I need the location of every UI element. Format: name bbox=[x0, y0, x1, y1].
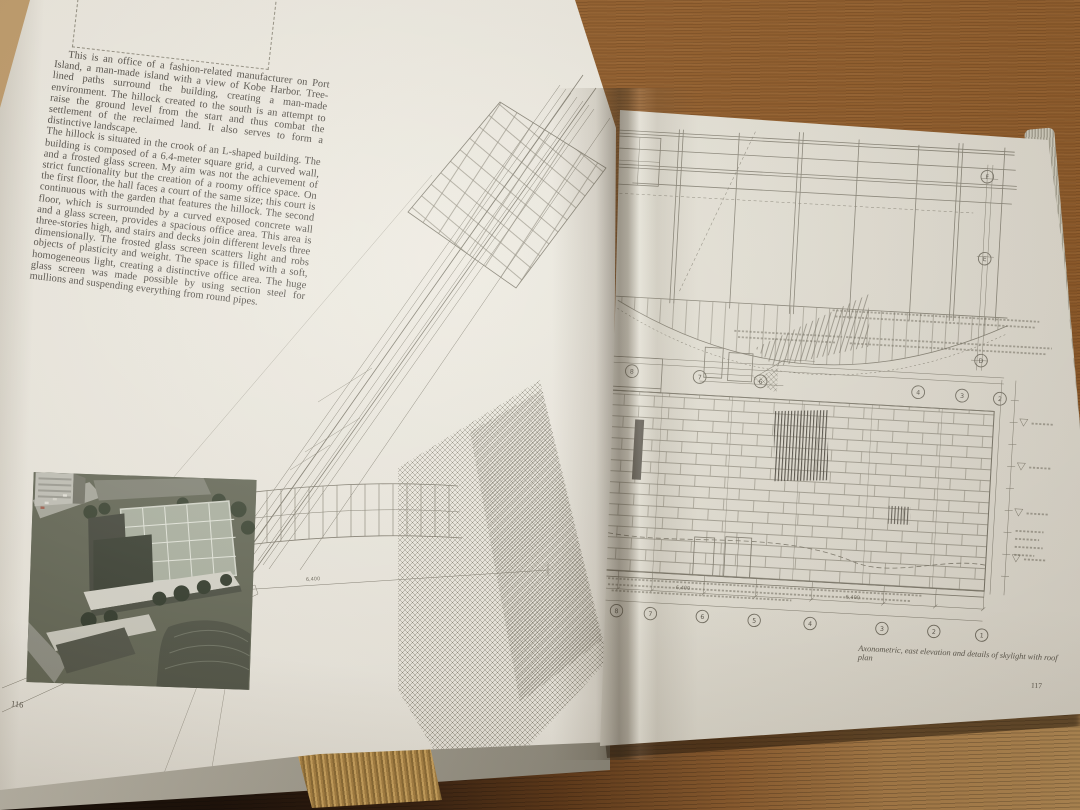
page-number-right: 117 bbox=[1031, 681, 1042, 691]
plan-col-bubble: 4 bbox=[911, 385, 924, 398]
svg-text:4: 4 bbox=[808, 621, 812, 628]
plan-col-bubble: 3 bbox=[955, 389, 968, 402]
page-number-left: 116 bbox=[11, 698, 24, 709]
photo-open-book: This is an office of a fashion-related m… bbox=[0, 0, 1080, 810]
svg-text:4: 4 bbox=[916, 389, 920, 396]
svg-text:7: 7 bbox=[648, 611, 652, 618]
svg-text:D: D bbox=[978, 358, 983, 365]
svg-text:5: 5 bbox=[752, 618, 756, 625]
svg-text:3: 3 bbox=[880, 626, 884, 633]
svg-text:3: 3 bbox=[960, 393, 964, 400]
plan-col-bubble: 8 bbox=[625, 364, 638, 377]
east-elevation-drawing: 6,400 6,400 10 9 bbox=[566, 354, 1056, 644]
svg-text:2: 2 bbox=[932, 629, 936, 636]
elevation-col-bubble: 5 bbox=[748, 614, 761, 627]
elevation-col-bubble: 6 bbox=[696, 610, 709, 623]
plan-row-bubble: E bbox=[978, 252, 991, 265]
louver-panel bbox=[770, 407, 832, 484]
plan-row-bubble: D bbox=[974, 354, 987, 367]
aerial-photo-image bbox=[26, 472, 256, 690]
elevation-col-bubble: 7 bbox=[644, 607, 657, 620]
plan-row-bubble: F bbox=[981, 170, 994, 183]
svg-text:F: F bbox=[985, 174, 989, 181]
elevation-col-bubble: 1 bbox=[975, 629, 988, 642]
elevation-col-bubble: 2 bbox=[927, 625, 940, 638]
elevation-col-bubble: 4 bbox=[804, 617, 817, 630]
roof-plan-drawing: F E D 9 8 7 bbox=[583, 121, 1063, 409]
svg-text:E: E bbox=[983, 256, 987, 263]
aerial-photo bbox=[26, 472, 256, 690]
svg-text:7: 7 bbox=[697, 374, 701, 381]
svg-text:6: 6 bbox=[700, 614, 704, 621]
svg-text:6: 6 bbox=[758, 379, 762, 386]
axon-roof-grid bbox=[392, 88, 616, 300]
axon-dim-label: 6,400 bbox=[306, 576, 321, 583]
svg-text:8: 8 bbox=[614, 608, 618, 615]
plan-col-bubble: 2 bbox=[993, 392, 1006, 405]
svg-text:2: 2 bbox=[998, 396, 1002, 403]
elevation-col-bubble: 3 bbox=[875, 622, 888, 635]
svg-text:8: 8 bbox=[630, 368, 634, 375]
svg-text:1: 1 bbox=[979, 632, 983, 639]
elevation-col-bubble: 8 bbox=[610, 604, 623, 617]
